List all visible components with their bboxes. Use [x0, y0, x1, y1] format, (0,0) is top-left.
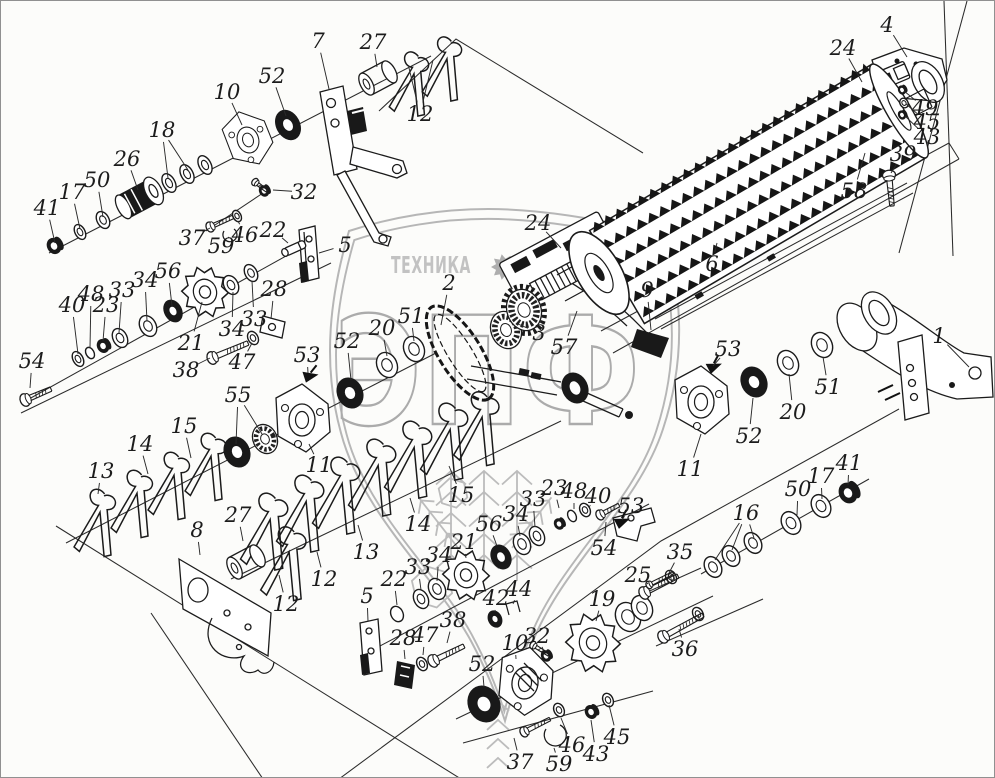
callout-9: 9 [640, 278, 653, 302]
tine-holder-bracket-8 [179, 559, 274, 673]
callout-52: 52 [259, 64, 286, 88]
callout-20: 20 [368, 316, 396, 340]
callout-22: 22 [380, 567, 408, 591]
callout-5: 5 [360, 584, 373, 608]
bearing [486, 541, 515, 573]
callout-10: 10 [214, 80, 241, 104]
callout-7: 7 [311, 29, 325, 53]
leader-line [143, 456, 148, 474]
callout-36: 36 [672, 637, 699, 661]
tine-guard [147, 450, 199, 522]
bearing [159, 296, 186, 326]
callout-46: 46 [558, 733, 586, 757]
bearing [270, 105, 306, 145]
callout-57: 57 [551, 335, 578, 359]
bearing [219, 432, 256, 472]
bolt [18, 383, 53, 408]
leader-line [103, 317, 105, 341]
callout-32: 32 [291, 180, 318, 204]
callout-3: 3 [532, 321, 545, 345]
leader-line [420, 579, 421, 590]
callout-41: 41 [33, 196, 61, 220]
tine-guard [110, 468, 162, 540]
plate-28-lower [394, 661, 415, 689]
leader-line [240, 527, 243, 541]
leader-line [30, 373, 31, 388]
callout-53: 53 [618, 494, 645, 518]
leader-line [534, 511, 535, 527]
leader-line [465, 554, 466, 558]
callout-13: 13 [88, 459, 115, 483]
callout-14: 14 [127, 432, 154, 456]
leader-line [797, 501, 798, 515]
bracket-arm-1 [829, 286, 993, 420]
callout-51: 51 [815, 375, 842, 399]
callout-28: 28 [260, 277, 288, 301]
leader-line [252, 281, 253, 307]
leader-line [73, 317, 78, 354]
nut [835, 478, 864, 507]
leader-line [732, 524, 742, 550]
callout-1: 1 [932, 324, 945, 348]
washer [566, 509, 578, 523]
washer [388, 604, 406, 624]
leader-line [409, 68, 417, 102]
leader-line [321, 53, 329, 89]
leader-line [367, 608, 368, 621]
leader-line [317, 552, 321, 567]
bearing [735, 362, 772, 402]
callout-15: 15 [448, 483, 475, 507]
leader-line [823, 357, 826, 375]
callout-2: 2 [441, 271, 455, 295]
leader-line [232, 292, 233, 317]
washer [72, 223, 88, 242]
callout-52: 52 [334, 329, 361, 353]
washer [551, 702, 566, 719]
leader-line [404, 650, 405, 659]
leader-line [271, 301, 273, 319]
callout-54: 54 [591, 536, 618, 560]
callout-59: 59 [208, 234, 235, 258]
leader-line [514, 738, 517, 750]
watermark-word-left: ТЕХНИКА [391, 253, 471, 279]
tine-guard [73, 487, 125, 559]
roller-27 [224, 542, 269, 581]
callout-16: 16 [733, 501, 760, 525]
callout-20: 20 [779, 400, 807, 424]
leader-line [187, 438, 191, 458]
callout-32: 32 [524, 624, 551, 648]
leader-line [423, 647, 424, 655]
callout-18: 18 [149, 118, 176, 142]
washer [773, 347, 802, 379]
callout-12: 12 [311, 567, 338, 591]
washer [414, 656, 429, 673]
callout-53: 53 [715, 337, 742, 361]
callout-4: 4 [879, 13, 893, 37]
washer [701, 553, 726, 580]
callout-56: 56 [155, 259, 182, 283]
callout-58: 58 [841, 179, 868, 203]
washer [195, 153, 215, 176]
nut [582, 702, 601, 721]
leader-line [358, 525, 363, 540]
callout-25: 25 [624, 563, 652, 587]
callout-6: 6 [705, 252, 718, 276]
leader-line [750, 398, 753, 424]
callout-53: 53 [294, 343, 321, 367]
nut [44, 234, 66, 257]
callout-11: 11 [677, 457, 704, 481]
callout-37: 37 [507, 750, 534, 774]
leader-line [447, 632, 450, 643]
callout-56: 56 [476, 512, 503, 536]
callout-46: 46 [231, 223, 259, 247]
leader-line [319, 249, 334, 253]
callout-54: 54 [19, 349, 46, 373]
leader-line [694, 434, 701, 458]
callout-24: 24 [829, 36, 857, 60]
washer [719, 542, 744, 569]
leader-line [483, 676, 484, 687]
leader-line [163, 142, 168, 178]
callout-5: 5 [338, 233, 351, 257]
leader-line [244, 405, 262, 434]
callout-39: 39 [890, 142, 917, 166]
flange-housing-11-right [675, 366, 729, 434]
leader-line [279, 575, 283, 592]
washer [136, 313, 160, 340]
callout-19: 19 [589, 587, 616, 611]
callout-35: 35 [667, 540, 694, 564]
leader-line [90, 306, 91, 348]
nut [552, 516, 568, 532]
leader-line [395, 591, 397, 605]
callout-8: 8 [190, 518, 203, 542]
leader-line [591, 720, 594, 742]
callout-34: 34 [503, 502, 530, 526]
callout-12: 12 [407, 102, 434, 126]
callout-50: 50 [84, 168, 111, 192]
callout-50: 50 [785, 477, 812, 501]
callout-55: 55 [225, 383, 252, 407]
beater-drum-6 [557, 58, 937, 323]
callout-17: 17 [808, 464, 835, 488]
callout-12: 12 [273, 592, 300, 616]
callout-14: 14 [405, 512, 432, 536]
washer [600, 692, 615, 709]
callout-38: 38 [440, 608, 467, 632]
callout-45: 45 [603, 725, 631, 749]
flange-housing-11-left [276, 384, 330, 452]
diagram-svg: ТЕХНИКА ЗАПЧАСТИ ЭПФ [1, 1, 995, 778]
leader-line [410, 498, 414, 513]
callout-22: 22 [259, 218, 287, 242]
callout-37: 37 [179, 226, 206, 250]
tine-guard [422, 35, 472, 104]
callout-24: 24 [524, 211, 552, 235]
bolt [204, 212, 235, 233]
callout-27: 27 [359, 30, 387, 54]
flange-housing-10 [219, 105, 278, 172]
exploded-parts-diagram: ТЕХНИКА ЗАПЧАСТИ ЭПФ [0, 0, 995, 778]
angle-bar-5-lower [360, 619, 382, 675]
callout-47: 47 [411, 623, 439, 647]
nut [94, 336, 113, 355]
callout-40: 40 [584, 484, 612, 508]
callout-52: 52 [469, 652, 496, 676]
callout-27: 27 [224, 503, 252, 527]
callout-17: 17 [59, 180, 86, 204]
leader-line [273, 190, 292, 191]
washer [109, 326, 131, 350]
leader-line [557, 500, 559, 508]
callout-15: 15 [171, 414, 198, 438]
leader-line [605, 522, 606, 536]
callout-26: 26 [113, 147, 141, 171]
washer [177, 162, 197, 185]
washer [241, 262, 260, 284]
callout-34: 34 [219, 317, 246, 341]
callout-21: 21 [450, 530, 478, 554]
washer [807, 329, 836, 361]
hub-26 [111, 174, 167, 223]
callout-21: 21 [177, 331, 205, 355]
callout-41: 41 [835, 451, 863, 475]
washer [777, 508, 805, 538]
angle-bar-5-upper [299, 226, 319, 283]
washer [93, 209, 112, 231]
callout-13: 13 [353, 540, 380, 564]
callout-51: 51 [398, 304, 425, 328]
callout-38: 38 [173, 358, 200, 382]
leader-line [198, 542, 200, 555]
callout-43: 43 [913, 125, 941, 149]
callout-48: 48 [560, 479, 588, 503]
callout-11: 11 [306, 453, 333, 477]
callout-52: 52 [736, 424, 763, 448]
callout-44: 44 [505, 577, 533, 601]
callout-34: 34 [426, 543, 453, 567]
leader-line [789, 374, 792, 400]
callout-47: 47 [228, 350, 256, 374]
leader-line [169, 140, 188, 170]
leader-line [609, 705, 614, 725]
washer [245, 329, 260, 346]
